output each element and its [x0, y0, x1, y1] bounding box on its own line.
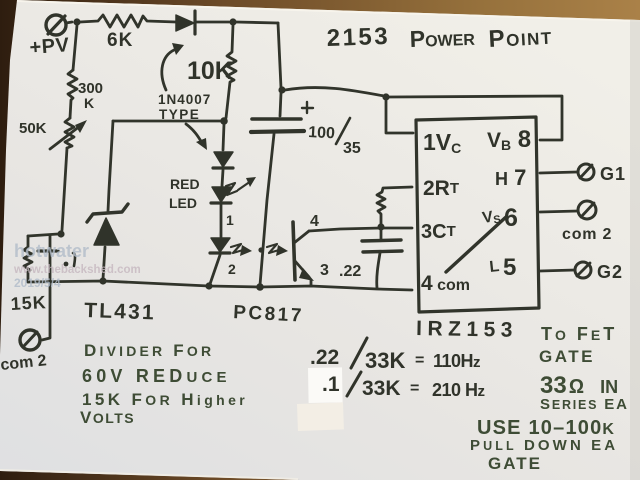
svg-text:=: = — [415, 352, 424, 369]
svg-text:4: 4 — [310, 213, 319, 230]
svg-text:35: 35 — [343, 140, 361, 157]
svg-text:33K: 33K — [365, 348, 405, 373]
svg-text:+PV: +PV — [29, 34, 70, 59]
svg-text:10K: 10K — [187, 57, 233, 85]
svg-text:DIVIDER FOR: DIVIDER FOR — [84, 341, 214, 360]
svg-text:TYPE: TYPE — [159, 107, 200, 122]
svg-text:=: = — [410, 380, 419, 397]
svg-text:15K: 15K — [10, 292, 47, 314]
svg-text:PC817: PC817 — [233, 302, 305, 327]
svg-text:60V REDUCE: 60V REDUCE — [82, 366, 231, 386]
svg-text:3: 3 — [320, 262, 329, 279]
svg-text:G1: G1 — [600, 164, 626, 184]
svg-text:IRZ153: IRZ153 — [416, 317, 518, 342]
svg-text:TL431: TL431 — [84, 299, 156, 324]
svg-text:2153: 2153 — [326, 23, 390, 52]
svg-text:2RT: 2RT — [423, 177, 459, 200]
svg-text:3CT: 3CT — [421, 221, 456, 243]
svg-text:6: 6 — [504, 204, 518, 232]
svg-text:210 Hz: 210 Hz — [432, 380, 485, 400]
svg-text:15K FOR Higher: 15K FOR Higher — [82, 390, 248, 409]
svg-text:100: 100 — [308, 124, 336, 142]
svg-text:com 2: com 2 — [562, 226, 612, 243]
svg-text:LED: LED — [169, 195, 197, 211]
svg-text:TO FET: TO FET — [541, 324, 617, 344]
svg-text:50K: 50K — [19, 120, 47, 137]
svg-text:hotwater: hotwater — [14, 241, 89, 261]
svg-text:33K: 33K — [362, 377, 401, 400]
svg-text:G2: G2 — [597, 262, 623, 282]
svg-text:VOLTS: VOLTS — [80, 408, 135, 427]
svg-text:1N4007: 1N4007 — [158, 92, 211, 107]
svg-text:.22: .22 — [339, 263, 361, 280]
svg-text:L: L — [489, 258, 501, 276]
svg-text:K: K — [84, 95, 94, 111]
svg-text:GATE: GATE — [539, 347, 595, 366]
svg-text:2: 2 — [228, 261, 236, 277]
svg-text:1: 1 — [226, 212, 234, 228]
svg-text:USE 10–100K: USE 10–100K — [477, 417, 615, 439]
svg-text:GATE: GATE — [488, 454, 542, 473]
svg-text:H 7: H 7 — [495, 165, 526, 190]
svg-text:SERIES EA: SERIES EA — [540, 396, 629, 413]
svg-text:PULL DOWN EA: PULL DOWN EA — [470, 437, 618, 454]
svg-text:RED: RED — [170, 176, 200, 192]
svg-text:2019/5/4: 2019/5/4 — [14, 276, 61, 290]
svg-text:110Hz: 110Hz — [433, 351, 480, 371]
svg-text:33ΩIN: 33ΩIN — [540, 372, 618, 399]
svg-text:www.thebackshed.com: www.thebackshed.com — [13, 264, 141, 276]
svg-text:.22: .22 — [310, 346, 339, 369]
svg-text:.1: .1 — [322, 373, 340, 396]
svg-text:5: 5 — [503, 254, 516, 281]
svg-text:6K: 6K — [107, 30, 133, 51]
